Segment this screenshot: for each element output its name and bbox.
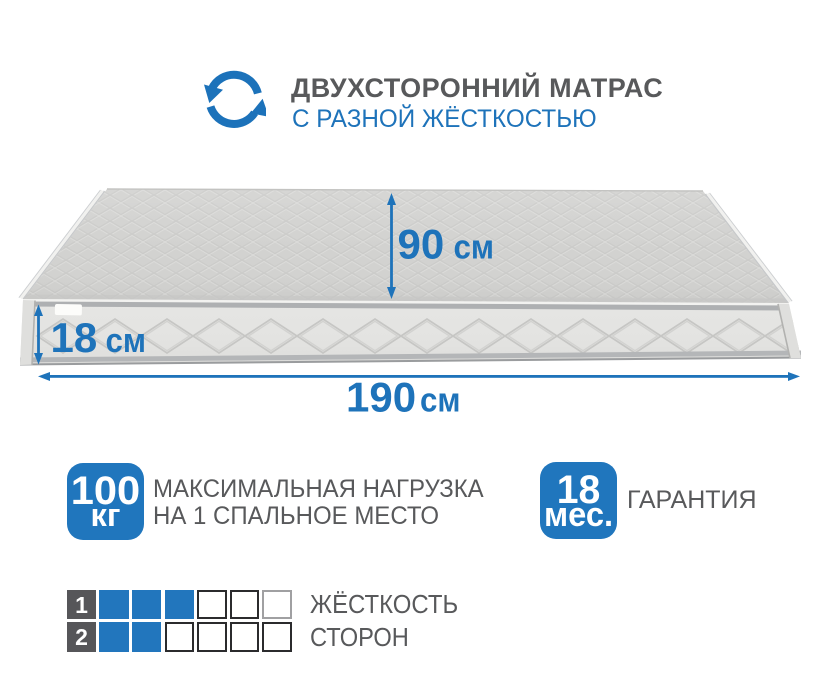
svg-text:см: см (420, 380, 461, 419)
svg-text:18: 18 (51, 314, 98, 361)
svg-text:190: 190 (346, 374, 416, 421)
svg-text:см: см (454, 227, 495, 266)
svg-text:см: см (106, 321, 147, 360)
svg-text:90: 90 (398, 220, 445, 267)
